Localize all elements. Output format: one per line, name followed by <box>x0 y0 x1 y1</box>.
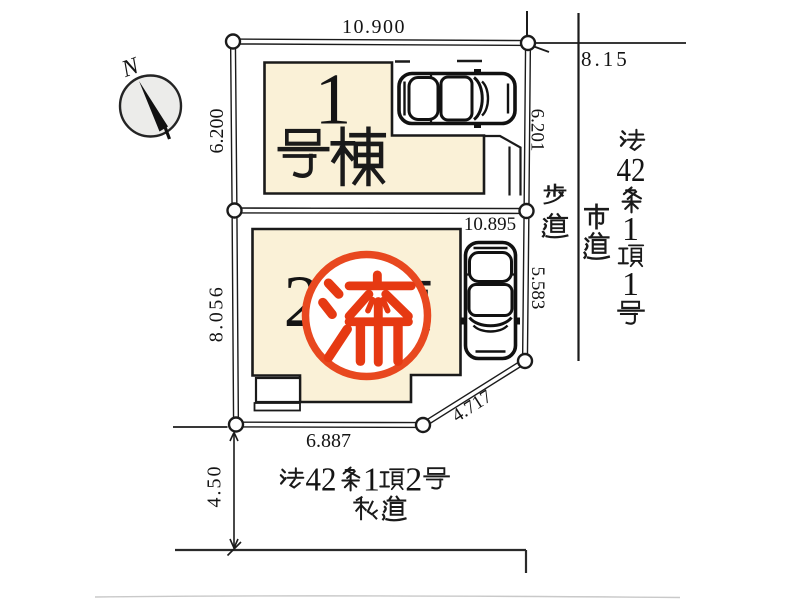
svg-text:42: 42 <box>617 152 646 189</box>
svg-text:2: 2 <box>405 462 422 499</box>
svg-text:10.900: 10.900 <box>342 16 406 38</box>
svg-text:1: 1 <box>622 266 639 303</box>
svg-text:4.50: 4.50 <box>204 465 226 508</box>
svg-text:6.201: 6.201 <box>527 109 548 152</box>
svg-text:6.200: 6.200 <box>206 109 228 154</box>
svg-text:6.887: 6.887 <box>306 430 351 452</box>
svg-text:10.895: 10.895 <box>464 214 516 235</box>
svg-text:42: 42 <box>306 462 337 499</box>
svg-text:8.15: 8.15 <box>581 47 630 71</box>
svg-text:8.056: 8.056 <box>206 285 228 343</box>
svg-text:5.583: 5.583 <box>527 267 548 310</box>
svg-text:1: 1 <box>622 211 639 248</box>
svg-text:1: 1 <box>363 462 380 499</box>
svg-text:1: 1 <box>315 59 352 140</box>
